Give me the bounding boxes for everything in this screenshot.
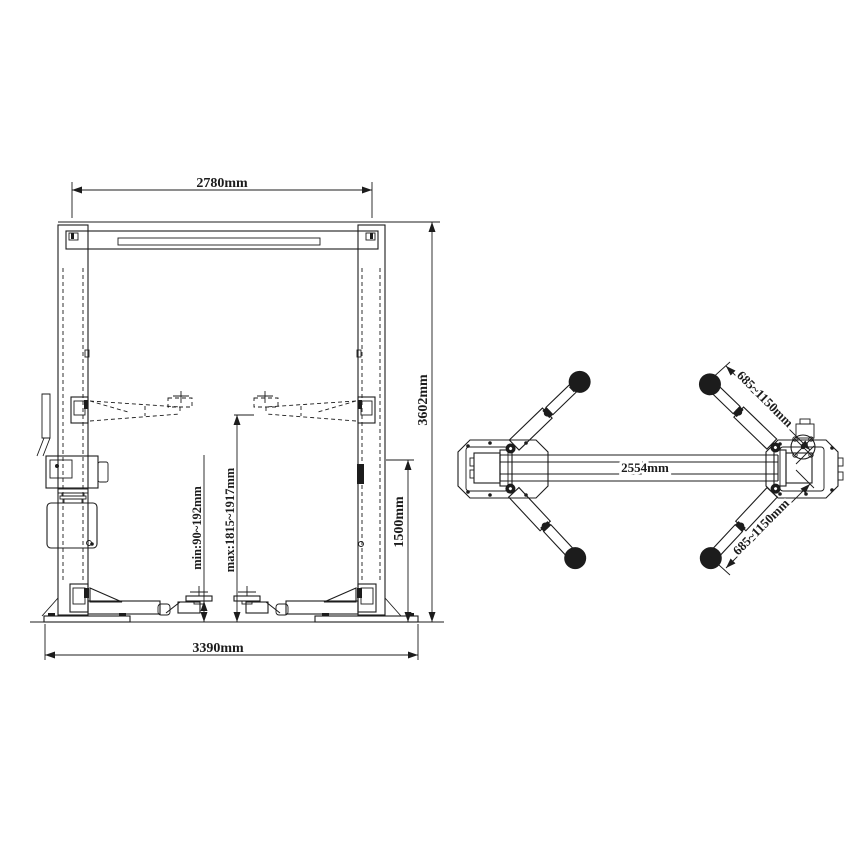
dim-top-width-label: 2780mm	[196, 176, 248, 191]
lowered-arm-right	[234, 584, 376, 615]
oil-tank	[47, 503, 97, 548]
coupler	[58, 489, 88, 493]
swing-arm-left-lower	[499, 477, 591, 573]
power-unit	[37, 394, 108, 548]
lift-pad	[564, 366, 595, 397]
left-base-plate	[44, 616, 130, 622]
dim-lower-arm-reach: 685~1150mm	[709, 470, 814, 575]
left-anchor-plate	[458, 440, 548, 498]
technical-drawing-canvas: 2780mm 3602mm 1500mm min:90~192mm max:18…	[0, 0, 860, 860]
raised-arm-right	[254, 391, 375, 423]
dim-carriage-height: 1500mm	[386, 460, 414, 622]
dim-pad-min-label: min:90~192mm	[190, 486, 204, 570]
dim-base-width: 3390mm	[45, 624, 418, 660]
dim-upper-arm-reach: 685~1150mm	[709, 362, 814, 464]
dim-upper-arm-reach-label: 685~1150mm	[734, 368, 796, 430]
overhead-beam	[58, 222, 440, 249]
dim-post-spacing-label: 2554mm	[621, 460, 669, 475]
left-post-plan	[458, 440, 548, 498]
dim-base-width-label: 3390mm	[192, 641, 244, 656]
dim-post-spacing: 2554mm	[621, 460, 669, 475]
dim-pad-max-label: max:1815~1917mm	[223, 467, 237, 572]
lift-pad	[694, 369, 725, 400]
power-button-icon	[55, 464, 59, 468]
swing-arm-right-lower	[695, 477, 787, 573]
front-view: 2780mm 3602mm 1500mm min:90~192mm max:18…	[30, 176, 444, 660]
cover-flap	[42, 394, 50, 438]
right-post	[357, 225, 385, 615]
dim-pad-max-height: max:1815~1917mm	[223, 415, 254, 622]
lowered-arm-left	[70, 584, 212, 615]
right-base-plate	[315, 616, 418, 622]
lift-pad	[186, 596, 212, 601]
dim-carriage-height-label: 1500mm	[392, 496, 407, 548]
two-post-lift-drawing: 2780mm 3602mm 1500mm min:90~192mm max:18…	[0, 0, 860, 860]
dim-total-height: 3602mm	[388, 222, 438, 622]
dim-pad-min-height: min:90~192mm	[190, 455, 212, 622]
lift-pad	[234, 596, 260, 601]
left-post	[58, 225, 92, 615]
left-post-section	[474, 453, 500, 483]
top-view: 2554mm 685~1150mm 685~1150mm	[458, 362, 843, 575]
dim-top-width: 2780mm	[72, 176, 372, 218]
raised-arm-left	[71, 391, 192, 423]
lift-pad	[560, 543, 591, 574]
swing-arm-left-upper	[499, 366, 595, 460]
dim-total-height-label: 3602mm	[416, 374, 431, 426]
